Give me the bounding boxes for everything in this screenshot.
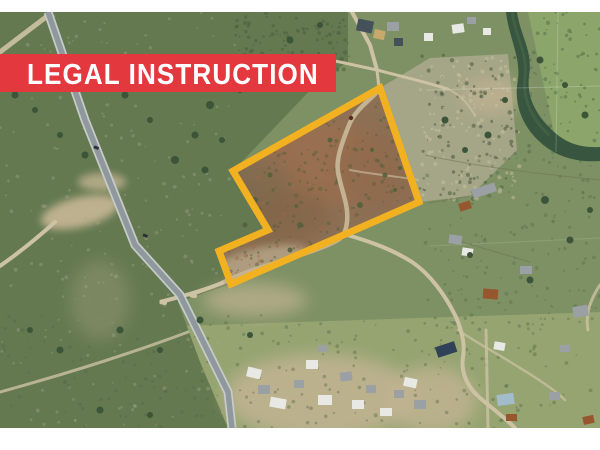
aerial-map: LEGAL INSTRUCTION xyxy=(0,0,600,450)
building-roof xyxy=(506,414,517,421)
building-roof xyxy=(549,392,560,400)
banner-title: LEGAL INSTRUCTION xyxy=(27,58,319,91)
building-roof xyxy=(318,395,332,405)
building-roof xyxy=(414,400,426,409)
building-roof xyxy=(496,393,514,406)
building-roof xyxy=(424,33,433,41)
building-roof xyxy=(306,360,318,369)
building-roof xyxy=(340,371,353,382)
building-roof xyxy=(387,22,399,31)
frame-top xyxy=(0,0,600,12)
building-roof xyxy=(483,28,491,35)
building-roof xyxy=(258,385,270,394)
building-roof xyxy=(560,345,570,352)
building-roof xyxy=(448,234,462,245)
satellite-screenshot: LEGAL INSTRUCTION xyxy=(0,0,600,450)
building-roof xyxy=(380,408,392,416)
building-roof xyxy=(467,17,476,24)
building-roof xyxy=(318,345,327,352)
building-roof xyxy=(366,385,376,393)
building-roof xyxy=(394,390,404,398)
building-roof xyxy=(452,23,465,34)
building-roof xyxy=(352,400,364,409)
building-roof xyxy=(294,380,304,388)
vehicle-on-parcel-road xyxy=(349,116,353,120)
building-roof xyxy=(394,38,403,46)
title-banner: LEGAL INSTRUCTION xyxy=(0,54,336,92)
building-roof xyxy=(520,266,532,274)
building-roof xyxy=(483,288,499,299)
frame-bottom xyxy=(0,428,600,450)
